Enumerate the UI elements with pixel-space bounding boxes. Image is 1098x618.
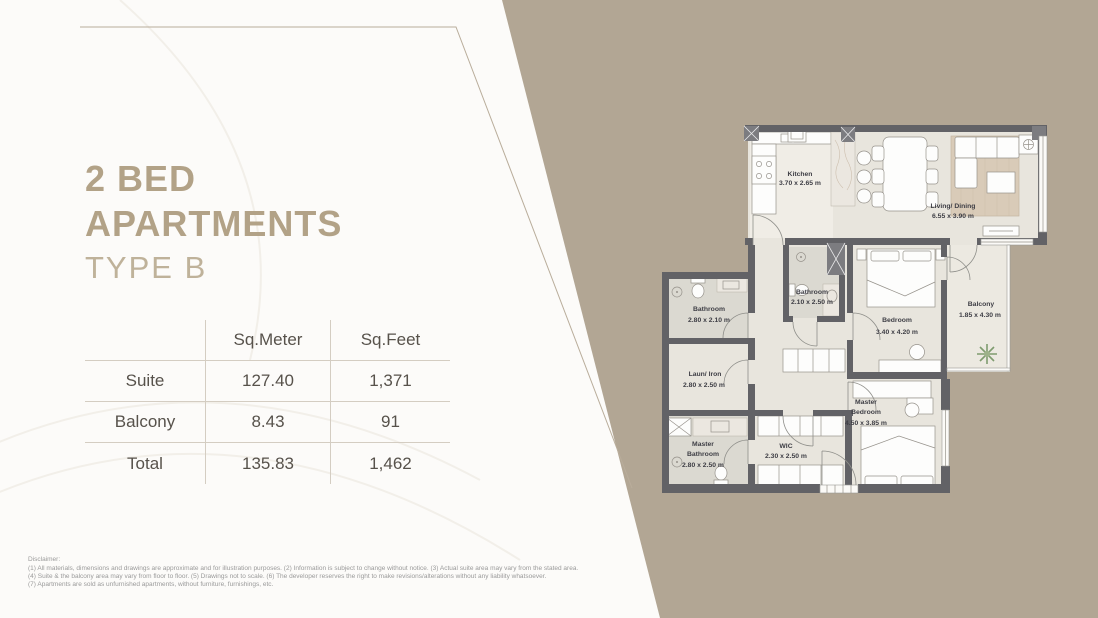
room-label-balcony: Balcony (968, 301, 995, 308)
room-dims-bathroom-2: 2.10 x 2.50 m (791, 299, 833, 306)
balcony-railing (1007, 245, 1010, 371)
balcony-plant (977, 344, 997, 364)
chair (905, 403, 919, 417)
room-label-bedroom: Bedroom (882, 317, 912, 324)
chair (910, 345, 925, 360)
floorplan: Kitchen 3.70 x 2.65 m Living/ Dining 6.5… (655, 110, 1065, 510)
disclaimer-line-3: (7) Apartments are sold as unfurnished a… (28, 581, 628, 589)
entry-threshold (820, 485, 858, 493)
total-sqm: 135.83 (205, 443, 330, 484)
room-dims-kitchen: 3.70 x 2.65 m (779, 180, 821, 187)
room-label-living-dining: Living/ Dining (931, 203, 976, 210)
pillow (871, 251, 899, 261)
disclaimer-line-2: (4) Suite & the balcony area may vary fr… (28, 573, 628, 581)
vanity (717, 278, 747, 292)
chaise (955, 158, 977, 188)
room-label-master-bath-2: Bathroom (687, 451, 719, 458)
table-corner-cell (85, 320, 205, 361)
suite-sqft: 1,371 (330, 361, 450, 402)
page-title: 2 BED APARTMENTS TYPE B (85, 156, 342, 290)
room-label-bathroom-1: Bathroom (693, 306, 725, 313)
dining-set (872, 137, 938, 211)
room-dims-master-bath: 2.80 x 2.50 m (682, 462, 724, 469)
brochure-page: 2 BED APARTMENTS TYPE B Sq.Meter Sq.Feet… (0, 0, 1098, 618)
disclaimer: Disclaimer: (1) All materials, dimension… (28, 556, 628, 589)
room-label-master-bed-1: Master (855, 399, 877, 406)
room-label-laundry: Laun/ Iron (689, 371, 722, 378)
room-label-kitchen: Kitchen (788, 171, 813, 178)
room-label-master-bath-1: Master (692, 441, 714, 448)
room-dims-living-dining: 6.55 x 3.90 m (932, 213, 974, 220)
total-sqft: 1,462 (330, 443, 450, 484)
title-type: TYPE B (85, 246, 342, 290)
wic-closet-top (758, 416, 843, 436)
room-label-master-bed-2: Bedroom (851, 409, 881, 416)
coffee-table (987, 172, 1015, 193)
room-dims-wic: 2.30 x 2.50 m (765, 453, 807, 460)
room-dims-master-bed: 4.50 x 3.85 m (845, 420, 887, 427)
wic-closet-bottom (758, 465, 843, 486)
nightstand (857, 249, 866, 260)
sofa (955, 137, 1019, 158)
suite-sqm: 127.40 (205, 361, 330, 402)
title-line-1: 2 BED (85, 156, 342, 201)
room-label-bathroom-2: Bathroom (796, 289, 828, 296)
dresser (853, 381, 931, 398)
bar-stool (857, 189, 871, 203)
room-dims-bathroom-1: 2.80 x 2.10 m (688, 317, 730, 324)
island-counter (831, 132, 855, 206)
disclaimer-heading: Disclaimer: (28, 556, 628, 564)
room-dims-balcony: 1.85 x 4.30 m (959, 312, 1001, 319)
room-dims-bedroom: 3.40 x 4.20 m (876, 329, 918, 336)
pillow (903, 251, 931, 261)
dining-table (883, 137, 927, 211)
disclaimer-line-1: (1) All materials, dimensions and drawin… (28, 565, 628, 573)
master-bedroom-furniture (853, 381, 935, 488)
balcony-sqm: 8.43 (205, 402, 330, 443)
room-dims-laundry: 2.80 x 2.50 m (683, 382, 725, 389)
bar-stool (857, 151, 871, 165)
balcony-railing (947, 368, 1010, 371)
row-label-balcony: Balcony (85, 402, 205, 443)
area-table: Sq.Meter Sq.Feet Suite 127.40 1,371 Balc… (85, 320, 450, 484)
row-label-suite: Suite (85, 361, 205, 402)
row-label-total: Total (85, 443, 205, 484)
toilet (692, 284, 704, 298)
col-header-sqmeter: Sq.Meter (205, 320, 330, 361)
title-line-2: APARTMENTS (85, 201, 342, 246)
room-label-wic: WIC (779, 443, 792, 450)
col-header-sqfeet: Sq.Feet (330, 320, 450, 361)
stove (752, 156, 776, 184)
hall-wardrobe (783, 349, 845, 372)
toilet-tank (789, 284, 795, 296)
balcony-sqft: 91 (330, 402, 450, 443)
bar-stool (857, 170, 871, 184)
